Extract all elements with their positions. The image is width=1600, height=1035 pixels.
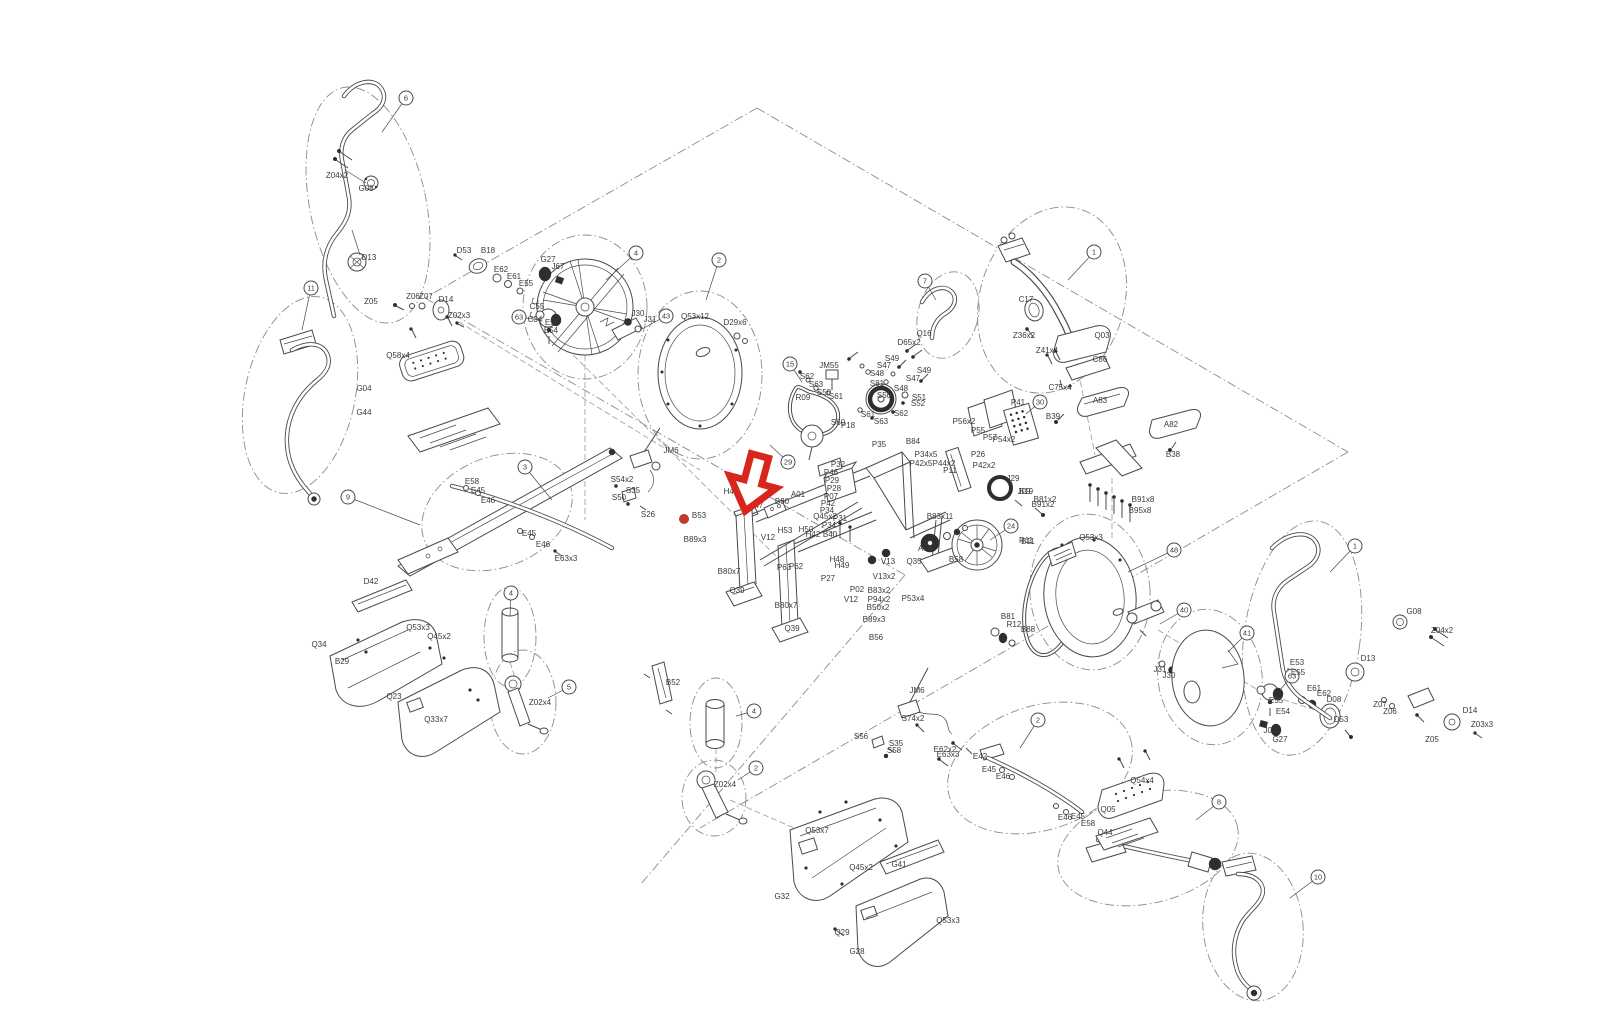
balloon-number: 6 bbox=[404, 94, 408, 103]
round-shroud-cover bbox=[658, 317, 748, 429]
part-label: J29 bbox=[1007, 474, 1020, 483]
bottom-center-cluster bbox=[644, 662, 952, 966]
part-label: R09 bbox=[796, 393, 811, 402]
balloon-number: 30 bbox=[1036, 398, 1044, 407]
balloon-number: 40 bbox=[1180, 606, 1188, 615]
balloon-number: 7 bbox=[923, 277, 927, 286]
part-label: B83x2 bbox=[868, 586, 891, 595]
part-label: B50x2 bbox=[867, 603, 890, 612]
balloon-number: 2 bbox=[717, 256, 721, 265]
part-label: E54 bbox=[544, 326, 559, 335]
crank-arm-bottom-right bbox=[1222, 856, 1263, 1000]
part-label: D53 bbox=[1334, 715, 1349, 724]
part-label: B80x7 bbox=[775, 601, 798, 610]
part-label: B95x8 bbox=[1129, 506, 1152, 515]
part-label: Q33x7 bbox=[424, 715, 448, 724]
balloon-number: 1 bbox=[1353, 542, 1357, 551]
balloon-number: 2 bbox=[1036, 716, 1040, 725]
part-label: Z02x4 bbox=[529, 698, 552, 707]
balloon-number: 8 bbox=[1217, 798, 1221, 807]
crank-arm-left bbox=[280, 330, 329, 505]
part-label: V13x2 bbox=[873, 572, 896, 581]
part-label: Q58x4 bbox=[386, 351, 410, 360]
boundary-lines bbox=[425, 108, 1348, 885]
balloon-number: 1 bbox=[1092, 248, 1096, 257]
part-label: D53 bbox=[457, 246, 472, 255]
balloon-number: 29 bbox=[784, 458, 792, 467]
red-dot-marker bbox=[679, 514, 689, 524]
part-label: C86 bbox=[1093, 355, 1108, 364]
disc-cover-right bbox=[1167, 626, 1353, 738]
part-label: B88 bbox=[1021, 625, 1036, 634]
part-label: V13 bbox=[881, 557, 896, 566]
part-label: P41 bbox=[1011, 398, 1026, 407]
part-label: P34x5 bbox=[915, 450, 938, 459]
part-label: S50 bbox=[612, 493, 627, 502]
part-label: G08 bbox=[358, 184, 374, 193]
part-label: B53 bbox=[692, 511, 707, 520]
balloon-number: 63 bbox=[515, 313, 523, 322]
part-label: B91x8 bbox=[1132, 495, 1155, 504]
part-label: S58 bbox=[887, 746, 902, 755]
part-label: H42 bbox=[806, 530, 821, 539]
part-label: J30 bbox=[1163, 671, 1176, 680]
part-label: P26 bbox=[971, 450, 986, 459]
part-label: G27 bbox=[1272, 735, 1288, 744]
part-label: B89x3 bbox=[684, 535, 707, 544]
part-label: P35 bbox=[872, 440, 887, 449]
part-label: Q44 bbox=[1097, 828, 1113, 837]
part-label: S54x2 bbox=[611, 475, 634, 484]
part-label: E54 bbox=[1276, 707, 1291, 716]
part-label: S35 bbox=[626, 486, 641, 495]
part-label: D08 bbox=[1327, 695, 1342, 704]
part-label: D13 bbox=[1361, 654, 1376, 663]
part-label: AT4 bbox=[918, 544, 933, 553]
part-label: P42x5 bbox=[910, 459, 933, 468]
part-label: S26 bbox=[641, 510, 656, 519]
part-label: Q45x2 bbox=[427, 632, 451, 641]
balloon-number: 11 bbox=[307, 284, 315, 293]
part-label: P18 bbox=[841, 421, 856, 430]
part-label: G44 bbox=[356, 408, 372, 417]
part-label: Z03x3 bbox=[1471, 720, 1494, 729]
part-label: B18 bbox=[481, 246, 496, 255]
part-label: P62 bbox=[789, 562, 804, 571]
part-label: Q53x3 bbox=[1079, 533, 1103, 542]
part-label: E55 bbox=[519, 279, 534, 288]
part-label: S52 bbox=[911, 399, 926, 408]
balloon-number: 41 bbox=[1243, 629, 1251, 638]
part-label: H49 bbox=[835, 561, 850, 570]
part-label: E45 bbox=[522, 529, 537, 538]
part-label: P27 bbox=[821, 574, 836, 583]
part-label: B56 bbox=[869, 633, 884, 642]
part-label: E55 bbox=[1291, 668, 1306, 677]
part-label: S49 bbox=[885, 354, 900, 363]
part-label: Q54x4 bbox=[1130, 776, 1154, 785]
support-rails-right bbox=[951, 741, 1221, 872]
ring-cover bbox=[1038, 533, 1142, 662]
part-label: A82 bbox=[1164, 420, 1179, 429]
part-label: E63x3 bbox=[555, 554, 578, 563]
part-label: Z36x2 bbox=[1013, 331, 1036, 340]
balloon-number: 4 bbox=[752, 707, 756, 716]
part-label: Q53x12 bbox=[681, 312, 710, 321]
part-label: J07 bbox=[1264, 726, 1277, 735]
part-label: G32 bbox=[774, 892, 790, 901]
part-label: B11 bbox=[1021, 537, 1035, 546]
part-label: Q39 bbox=[729, 586, 745, 595]
balloon-number: 4 bbox=[509, 589, 513, 598]
part-label: P11 bbox=[943, 466, 957, 475]
balloon-number: 9 bbox=[346, 493, 350, 502]
part-label: C34 bbox=[528, 315, 543, 324]
part-label: B80x7 bbox=[718, 567, 741, 576]
part-label: C17 bbox=[1019, 295, 1034, 304]
part-label: Q53x3 bbox=[406, 623, 430, 632]
part-label: J31 bbox=[644, 315, 657, 324]
balloon-number: 5 bbox=[567, 683, 571, 692]
part-label: S61 bbox=[829, 392, 844, 401]
post-and-crank-left bbox=[502, 608, 548, 734]
part-label: B58 bbox=[949, 555, 964, 564]
part-label: P54x2 bbox=[993, 435, 1016, 444]
part-label: S81 bbox=[870, 379, 885, 388]
part-label: Z05 bbox=[364, 297, 378, 306]
part-label: JM6 bbox=[909, 686, 925, 695]
roller-rail-left bbox=[398, 448, 622, 576]
part-label: Z41x4 bbox=[1036, 346, 1059, 355]
part-label: P31 bbox=[833, 514, 848, 523]
part-label: Z02x3 bbox=[448, 311, 471, 320]
part-label: E45 bbox=[471, 486, 486, 495]
handle-grip-top-right bbox=[905, 288, 954, 359]
part-label: E63x3 bbox=[937, 750, 960, 759]
part-label: G08 bbox=[1406, 607, 1422, 616]
idler-bracket bbox=[1127, 600, 1176, 674]
part-label: S47 bbox=[906, 374, 921, 383]
part-label: C75x4 bbox=[1048, 383, 1072, 392]
part-label: Q23 bbox=[386, 692, 402, 701]
part-label: E46 bbox=[536, 540, 551, 549]
part-label: Z04x2 bbox=[1431, 626, 1454, 635]
balloon-number: 10 bbox=[1314, 873, 1322, 882]
part-label: B91x2 bbox=[1032, 500, 1055, 509]
balloon-number: 24 bbox=[1007, 522, 1015, 531]
part-label: H53 bbox=[778, 526, 793, 535]
part-label: E46 bbox=[481, 496, 496, 505]
part-label: B84 bbox=[906, 437, 921, 446]
part-label: D14 bbox=[439, 295, 454, 304]
part-label: Z07 bbox=[419, 292, 433, 301]
part-label: B52 bbox=[666, 678, 681, 687]
part-label: S48 bbox=[870, 369, 885, 378]
part-label: E45 bbox=[982, 765, 997, 774]
part-label: Q05 bbox=[1100, 805, 1116, 814]
part-label: A01 bbox=[791, 490, 806, 499]
part-label: V12 bbox=[844, 595, 859, 604]
part-label: B29 bbox=[335, 657, 350, 666]
part-label: E55 bbox=[1269, 696, 1284, 705]
part-label: S63 bbox=[874, 417, 889, 426]
part-label: E42 bbox=[973, 752, 988, 761]
part-label: B39 bbox=[1046, 412, 1061, 421]
part-label: JM55 bbox=[819, 361, 839, 370]
part-label: C55 bbox=[530, 302, 545, 311]
part-label: P42x2 bbox=[973, 461, 996, 470]
part-label: Q35 bbox=[906, 557, 922, 566]
part-label: Q29 bbox=[834, 928, 850, 937]
part-label: Q16 bbox=[916, 329, 932, 338]
part-label: B40 bbox=[823, 530, 838, 539]
part-label: P02 bbox=[850, 585, 865, 594]
pedal-left bbox=[397, 316, 500, 453]
part-label: P56x2 bbox=[953, 417, 976, 426]
part-label: Q53x7 bbox=[805, 826, 829, 835]
parts-diagram-page: 61193443632152971302448404163145422810 Z… bbox=[0, 0, 1600, 1035]
part-label: JM6 bbox=[663, 446, 679, 455]
part-label: D42 bbox=[364, 577, 379, 586]
part-label: S74x2 bbox=[902, 714, 925, 723]
part-label: P53x4 bbox=[902, 594, 925, 603]
balloon-number: 4 bbox=[634, 249, 638, 258]
part-label: Q39 bbox=[784, 624, 800, 633]
part-label: S62 bbox=[894, 409, 909, 418]
part-label: E58 bbox=[1081, 819, 1096, 828]
part-label: D65x2 bbox=[897, 338, 921, 347]
exploded-parts-diagram: 61193443632152971302448404163145422810 Z… bbox=[0, 0, 1600, 1035]
part-label: G28 bbox=[849, 947, 865, 956]
part-label: Q03 bbox=[1094, 331, 1110, 340]
part-label: E58 bbox=[465, 477, 480, 486]
part-label: B19 bbox=[1019, 487, 1034, 496]
balloon-number: 48 bbox=[1170, 546, 1178, 555]
part-label: B38 bbox=[1166, 450, 1181, 459]
part-label: R12 bbox=[1007, 620, 1022, 629]
part-label: Z05 bbox=[1425, 735, 1439, 744]
part-label: A83 bbox=[1093, 396, 1108, 405]
part-label: V12 bbox=[761, 533, 776, 542]
part-label: Z04x2 bbox=[326, 171, 349, 180]
balloon-number: 3 bbox=[523, 463, 527, 472]
part-label: B80 bbox=[775, 497, 790, 506]
part-label: B83x11 bbox=[927, 512, 954, 521]
part-label: Z06 bbox=[1383, 707, 1397, 716]
part-label: E53 bbox=[1290, 658, 1305, 667]
part-label: D13 bbox=[362, 253, 377, 262]
part-label: Z02x4 bbox=[714, 780, 737, 789]
part-label: G04 bbox=[356, 384, 372, 393]
balloon-number: 43 bbox=[662, 312, 670, 321]
part-label: D29x6 bbox=[723, 318, 747, 327]
balloon-number: 15 bbox=[786, 360, 794, 369]
side-covers-left bbox=[330, 580, 500, 756]
part-label: G41 bbox=[891, 860, 907, 869]
balloon-number: 2 bbox=[754, 764, 758, 773]
part-label: Q45x2 bbox=[849, 863, 873, 872]
part-label: S50 bbox=[877, 391, 892, 400]
part-label: Q53x3 bbox=[936, 916, 960, 925]
part-label: J67 bbox=[552, 262, 565, 271]
part-label: S56 bbox=[854, 732, 869, 741]
part-label: S48 bbox=[894, 384, 909, 393]
part-label: B89x3 bbox=[863, 615, 886, 624]
part-label: D14 bbox=[1463, 706, 1478, 715]
part-label: Q34 bbox=[311, 640, 327, 649]
part-label: E46 bbox=[996, 772, 1011, 781]
